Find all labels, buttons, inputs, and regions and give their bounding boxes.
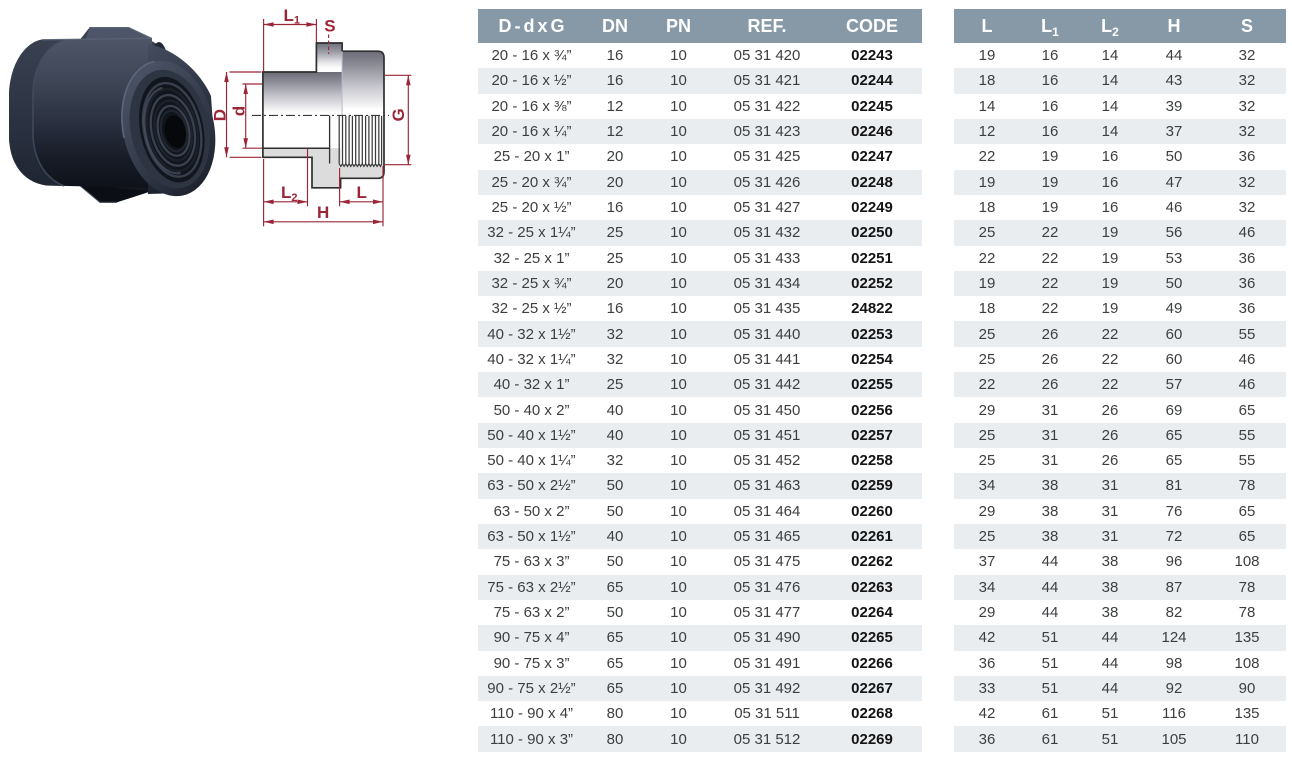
svg-text:G: G: [389, 108, 408, 121]
svg-text:d: d: [230, 106, 249, 116]
svg-text:D: D: [210, 109, 229, 121]
svg-text:H: H: [317, 203, 329, 222]
svg-text:S: S: [324, 17, 335, 36]
svg-text:L: L: [357, 183, 367, 202]
svg-text:L1: L1: [284, 6, 301, 27]
svg-text:L2: L2: [281, 183, 298, 204]
